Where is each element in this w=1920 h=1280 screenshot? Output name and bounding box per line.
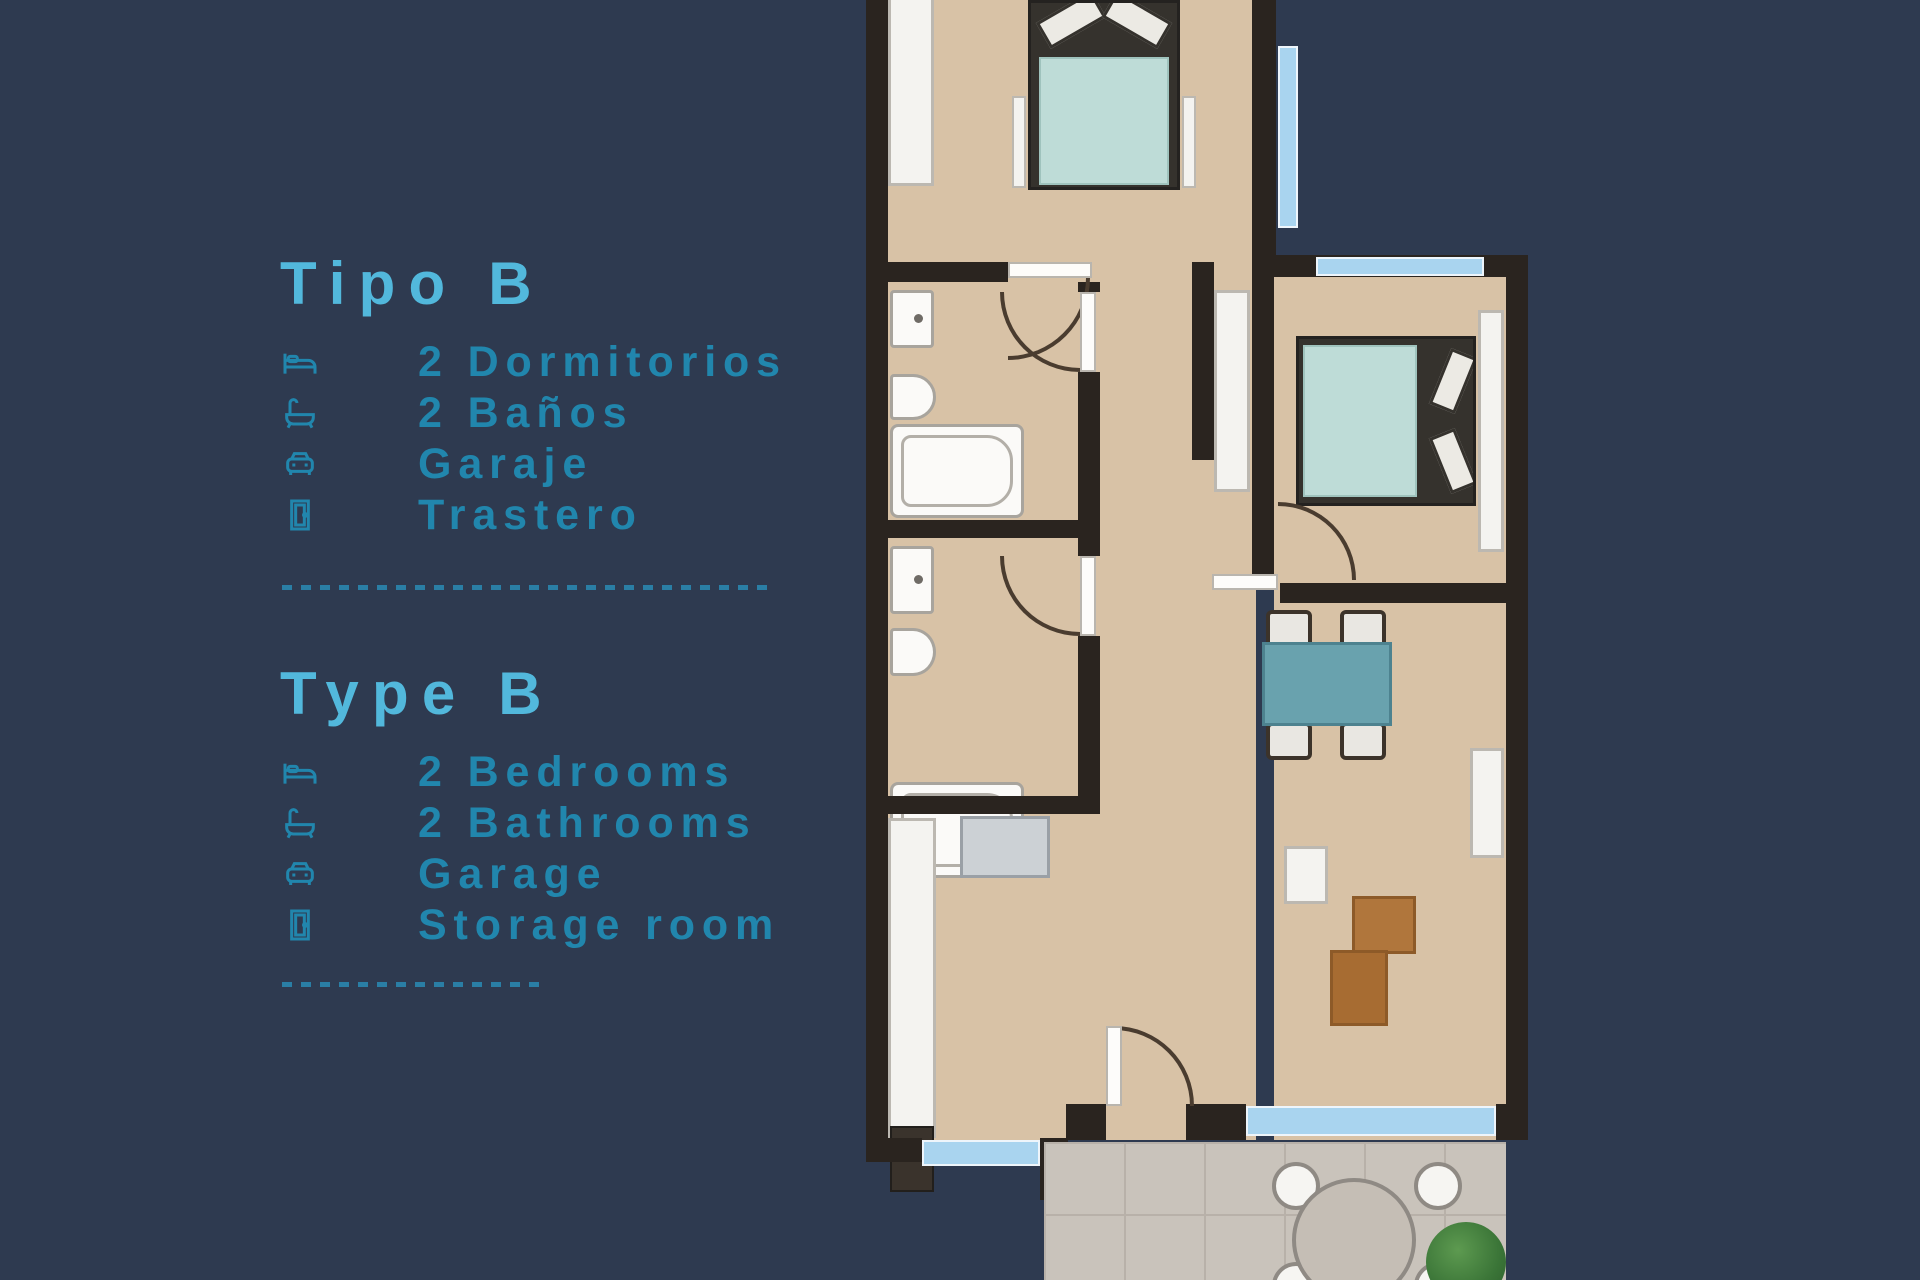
- sink-bathroom1: [890, 290, 934, 348]
- window-bedroom1: [1278, 46, 1298, 228]
- door-bedroom2: [1212, 574, 1278, 590]
- bed-bedroom2: [1296, 336, 1476, 506]
- wall-living-bottom-a: [1066, 1104, 1106, 1140]
- wall-bathrooms-bottom: [888, 796, 1100, 814]
- window-kitchen: [922, 1140, 1040, 1166]
- wall-kitchen-bottom: [866, 1138, 922, 1162]
- nightstand-bedroom1-right: [1182, 96, 1196, 188]
- nightstand-bedroom1-left: [1012, 96, 1026, 188]
- kitchen-counter: [888, 818, 936, 1138]
- pillow: [1429, 348, 1476, 414]
- sideboard-living: [1470, 748, 1504, 858]
- window-bedroom2: [1316, 257, 1484, 276]
- wall-bedroom2-left: [1252, 277, 1274, 577]
- wall-hall-stub: [1192, 262, 1214, 460]
- bathtub-bathroom1: [890, 424, 1024, 518]
- closet-hallway: [1214, 290, 1250, 492]
- toilet-bathroom1: [890, 374, 936, 420]
- wall-bedroom2-bottom: [1280, 583, 1506, 603]
- pillow: [1036, 0, 1106, 49]
- terrace-chair: [1414, 1162, 1462, 1210]
- door-bedroom1: [1008, 262, 1092, 278]
- bed-bedroom1: [1028, 0, 1180, 190]
- wall-living-bottom-c: [1496, 1104, 1528, 1140]
- pillow: [1102, 0, 1172, 49]
- armchair-wood: [1330, 950, 1388, 1026]
- wall-living-bottom-b: [1186, 1104, 1246, 1140]
- floorplan: [0, 0, 1920, 1280]
- closet-bedroom2: [1478, 310, 1504, 552]
- side-table: [1284, 846, 1328, 904]
- bed-blanket: [1039, 57, 1169, 185]
- wall-bathrooms-right-b: [1078, 372, 1100, 556]
- floorplan-flyer: Tipo B 2 Dormitorios 2 Baños Garaje: [0, 0, 1920, 1280]
- wall-bathrooms-right-c: [1078, 636, 1100, 814]
- wall-right: [1506, 255, 1528, 1140]
- wall-left: [866, 0, 888, 1162]
- wall-bedroom1-bottom: [888, 262, 1008, 282]
- pillow: [1429, 428, 1476, 494]
- wardrobe-bedroom1: [888, 0, 934, 186]
- dining-chair: [1340, 722, 1386, 760]
- door-terrace: [1106, 1026, 1122, 1106]
- window-living: [1246, 1106, 1496, 1136]
- door-bathroom2: [1080, 556, 1096, 636]
- dining-chair: [1266, 722, 1312, 760]
- coffee-table: [1352, 896, 1416, 954]
- wall-bedroom1-right: [1252, 0, 1276, 277]
- door-bathroom1: [1080, 292, 1096, 372]
- wall-bathroom-divider: [888, 520, 1078, 538]
- sink-bathroom2: [890, 546, 934, 614]
- dining-table: [1262, 642, 1392, 726]
- bed-blanket: [1303, 345, 1417, 497]
- toilet-bathroom2: [890, 628, 936, 676]
- kitchen-cabinet: [960, 816, 1050, 878]
